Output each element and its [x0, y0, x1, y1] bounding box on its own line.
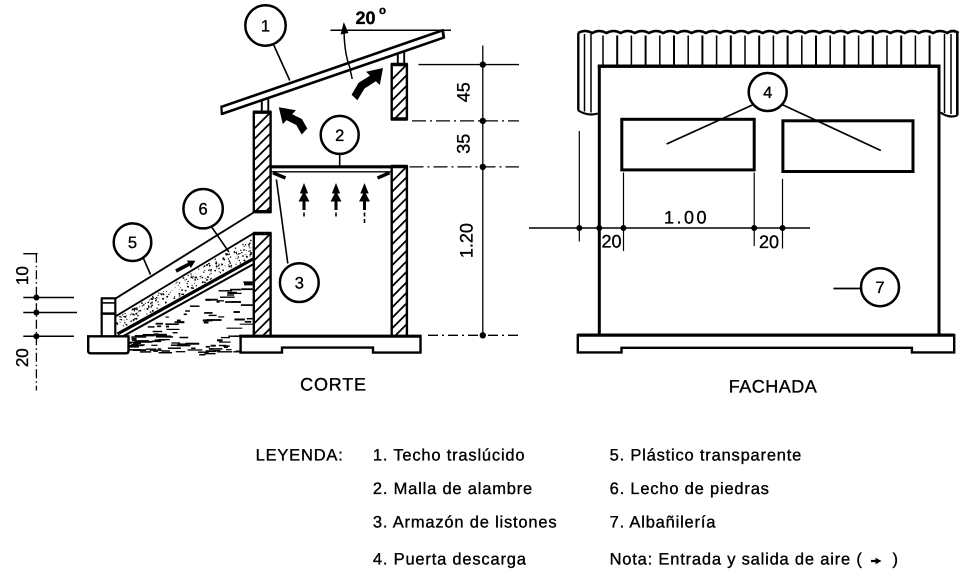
svg-text:45: 45 [454, 82, 474, 102]
svg-text:5: 5 [128, 234, 137, 252]
svg-text:3: 3 [295, 275, 304, 293]
svg-text:7. Albañilería: 7. Albañilería [610, 514, 717, 532]
svg-text:): ) [893, 551, 899, 569]
svg-text:1.00: 1.00 [664, 208, 709, 228]
svg-text:20: 20 [356, 8, 376, 28]
svg-text:CORTE: CORTE [300, 375, 367, 395]
svg-text:LEYENDA:: LEYENDA: [256, 447, 344, 465]
svg-text:o: o [379, 5, 386, 17]
svg-text:1: 1 [261, 18, 270, 36]
svg-text:1. Techo traslúcido: 1. Techo traslúcido [373, 447, 525, 465]
svg-text:20: 20 [13, 348, 32, 367]
svg-text:6. Lecho de piedras: 6. Lecho de piedras [610, 480, 770, 498]
svg-text:FACHADA: FACHADA [729, 377, 818, 397]
svg-text:Nota: Entrada y salida de aire: Nota: Entrada y salida de aire ( [610, 551, 863, 569]
svg-text:10: 10 [13, 266, 32, 285]
svg-text:2. Malla de alambre: 2. Malla de alambre [373, 480, 533, 498]
svg-text:20: 20 [602, 232, 622, 252]
svg-text:4. Puerta descarga: 4. Puerta descarga [373, 551, 527, 569]
svg-text:5. Plástico transparente: 5. Plástico transparente [610, 447, 803, 465]
svg-text:20: 20 [759, 232, 779, 252]
svg-text:6: 6 [199, 201, 208, 219]
svg-text:2: 2 [335, 127, 344, 145]
svg-text:1.20: 1.20 [457, 223, 477, 258]
svg-text:3. Armazón de listones: 3. Armazón de listones [373, 514, 558, 532]
svg-text:35: 35 [454, 134, 474, 154]
svg-text:4: 4 [763, 84, 772, 102]
svg-text:7: 7 [875, 279, 884, 297]
